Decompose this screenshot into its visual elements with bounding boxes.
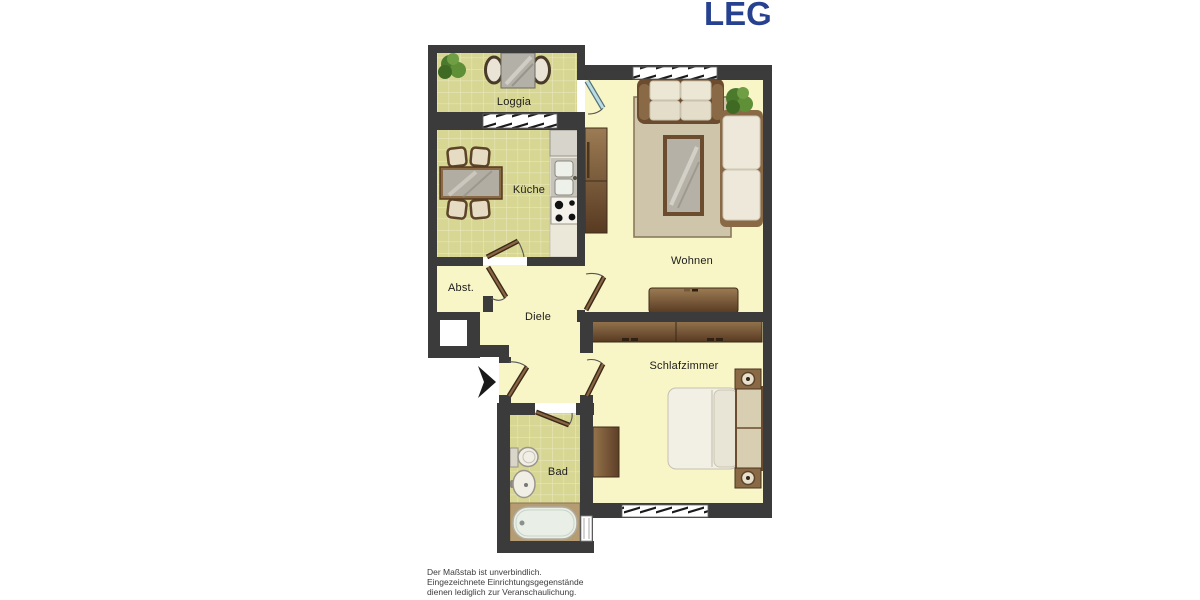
coffee-table — [663, 135, 704, 216]
living-cabinet — [585, 128, 607, 233]
nightstand-top — [735, 369, 761, 389]
fridge — [550, 130, 578, 156]
kitchen-sink — [551, 158, 578, 197]
loggia-table — [501, 53, 535, 88]
room-label-abstellraum: Abst. — [448, 282, 474, 294]
disclaimer-text: Der Maßstab ist unverbindlich. Eingezeic… — [427, 568, 583, 597]
leg-logo: LEG — [704, 0, 772, 33]
floorplan-drawing — [0, 0, 1200, 600]
stove — [551, 197, 578, 224]
side-sofa — [720, 110, 763, 227]
bed — [668, 387, 762, 470]
loggia-window — [483, 114, 557, 128]
room-label-wohnen: Wohnen — [671, 255, 713, 267]
bathtub — [510, 503, 580, 543]
toilet — [510, 448, 538, 468]
living-window — [633, 67, 717, 79]
wall-niche — [440, 320, 467, 346]
bath-window — [581, 516, 592, 541]
room-label-bad: Bad — [548, 466, 568, 478]
disclaimer-line: dienen lediglich zur Veranschaulichung. — [427, 588, 583, 598]
room-label-loggia: Loggia — [497, 96, 531, 108]
nightstand-bottom — [735, 468, 761, 488]
entrance-arrow-icon — [478, 366, 496, 398]
floorplan-page: Loggia Küche Wohnen Abst. Diele Schlafzi… — [0, 0, 1200, 600]
bedroom-window — [622, 505, 708, 517]
room-label-kueche: Küche — [513, 184, 545, 196]
room-label-diele: Diele — [525, 311, 551, 323]
room-label-schlafzimmer: Schlafzimmer — [649, 360, 718, 372]
dresser — [593, 427, 619, 477]
kitchen-counter — [550, 130, 578, 257]
sofa — [637, 78, 724, 124]
sideboard — [649, 288, 738, 313]
